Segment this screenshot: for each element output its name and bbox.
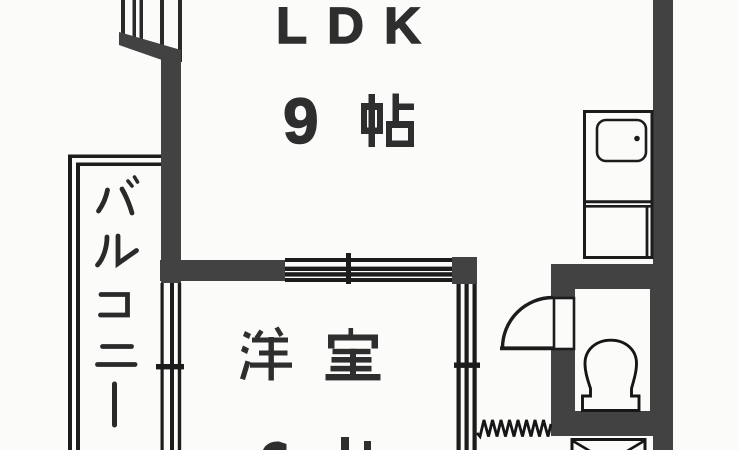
svg-text:9: 9 xyxy=(283,85,319,157)
svg-text:LDK: LDK xyxy=(276,0,441,54)
